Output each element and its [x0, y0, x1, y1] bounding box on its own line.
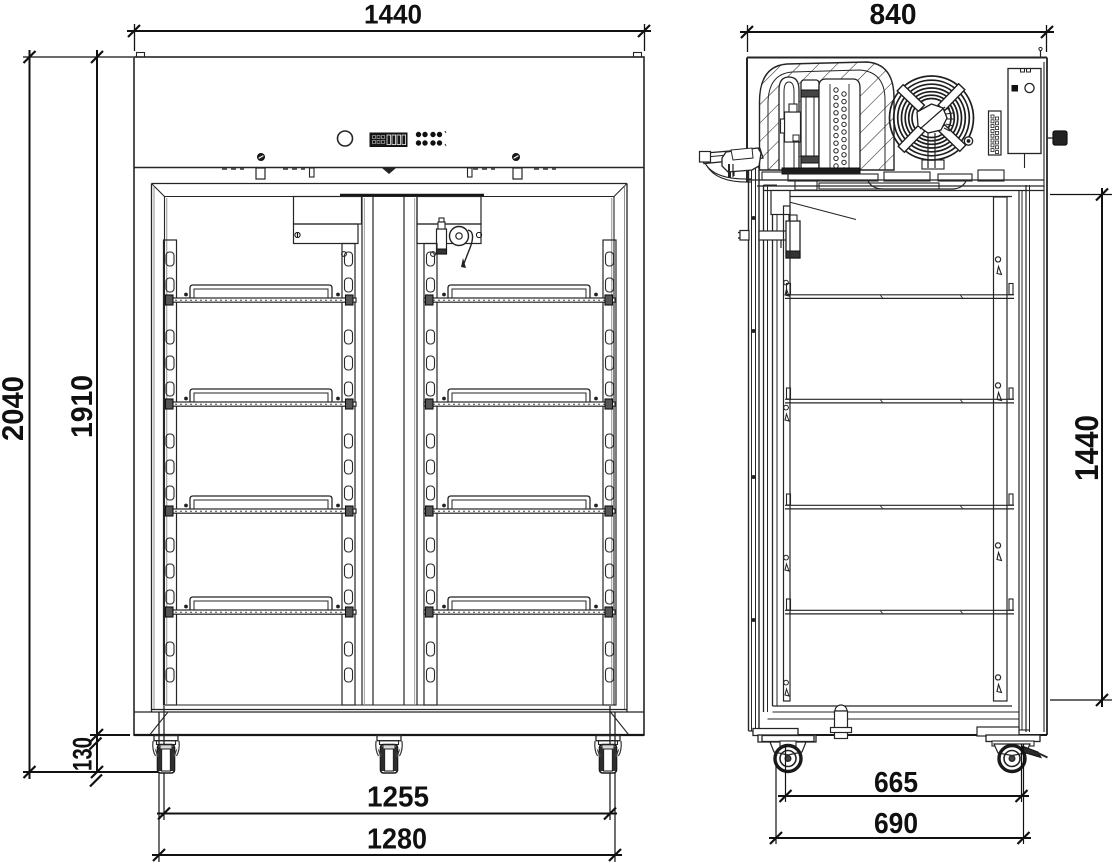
svg-text:1255: 1255	[367, 782, 429, 814]
svg-text:690: 690	[874, 808, 918, 840]
svg-text:840: 840	[870, 0, 917, 31]
svg-text:1440: 1440	[1068, 415, 1105, 481]
svg-text:665: 665	[874, 767, 918, 799]
svg-text:1280: 1280	[367, 824, 427, 856]
svg-text:1440: 1440	[364, 0, 422, 30]
svg-text:2040: 2040	[0, 376, 30, 441]
svg-text:130: 130	[68, 737, 98, 771]
svg-text:1910: 1910	[66, 375, 99, 438]
